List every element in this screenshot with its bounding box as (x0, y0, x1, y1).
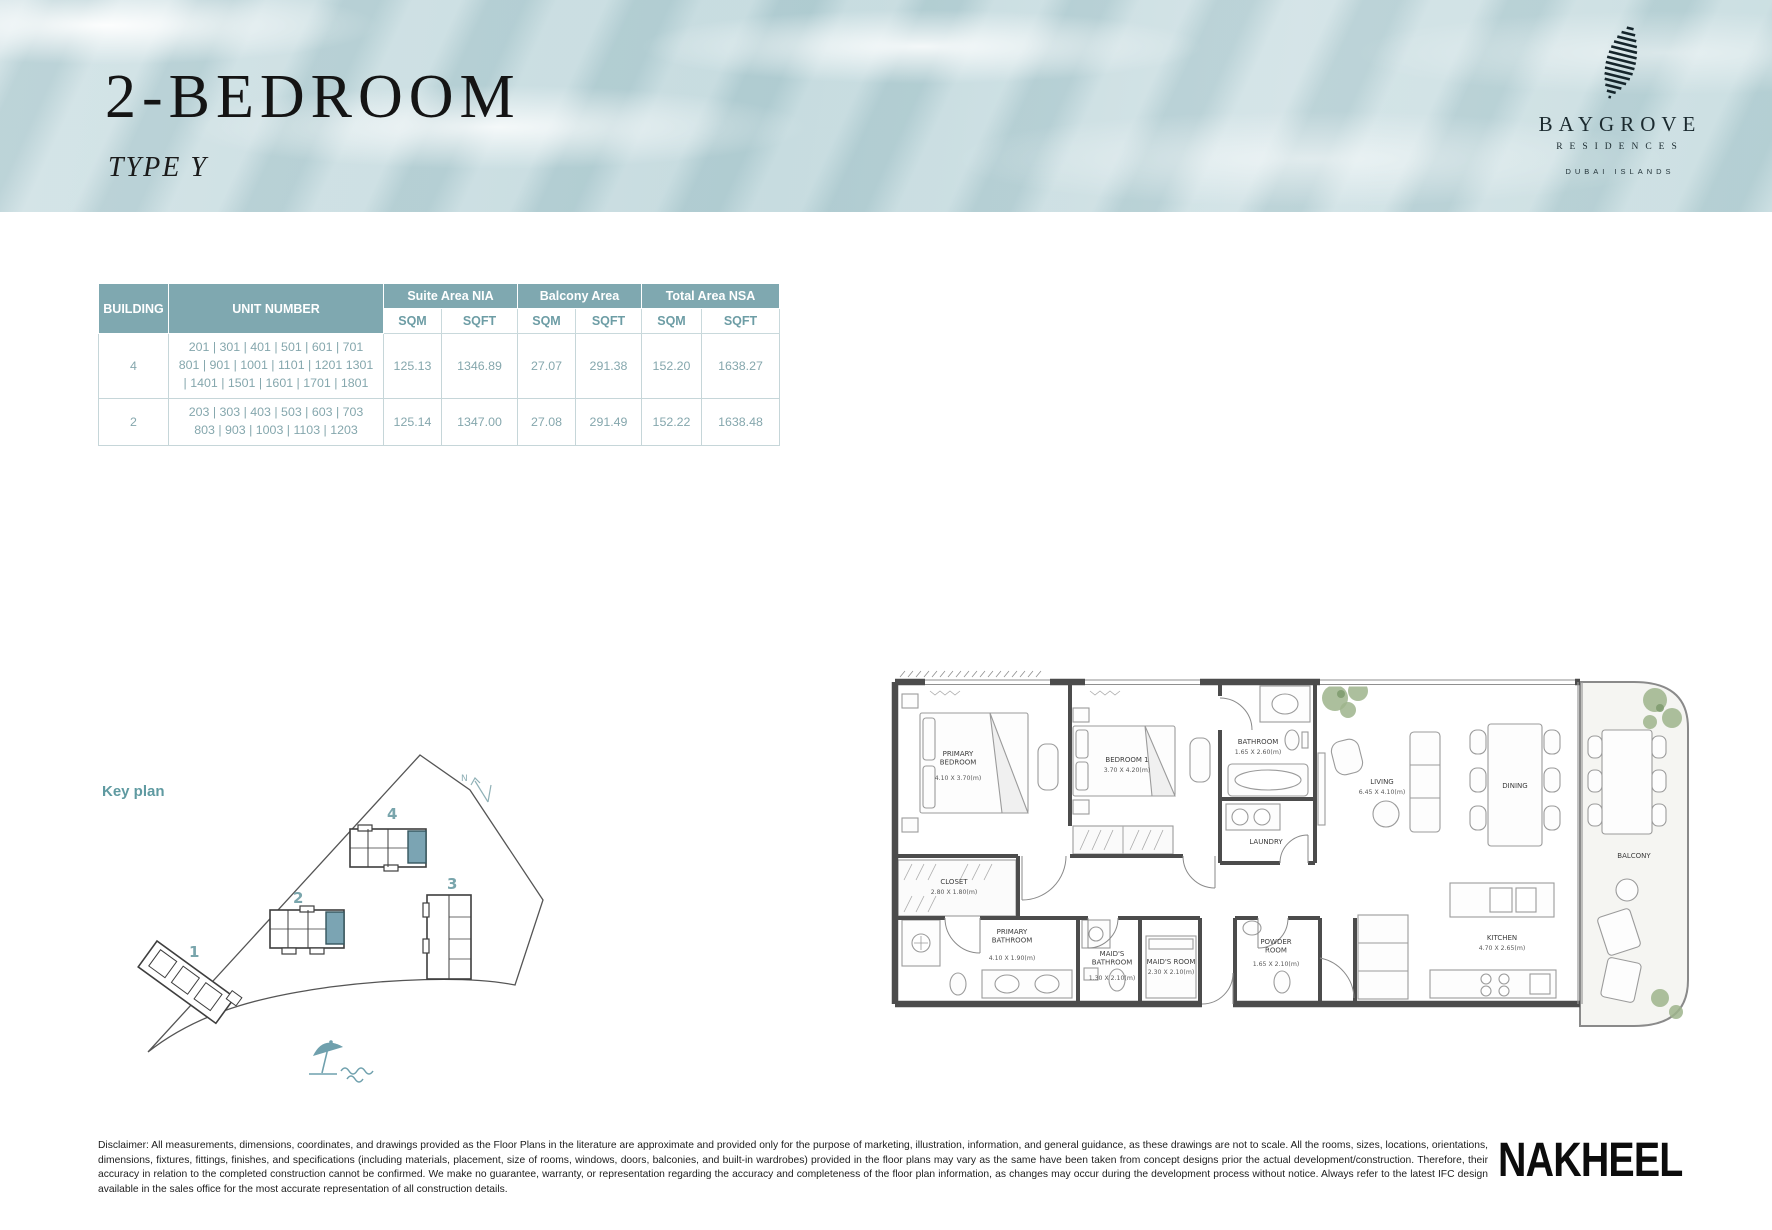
svg-text:3.70 X 4.20(m): 3.70 X 4.20(m) (1104, 767, 1151, 774)
brochure-page: 2-BEDROOM TYPE Y (0, 0, 1772, 1230)
table-row: 2 203 | 303 | 403 | 503 | 603 | 703 803 … (99, 398, 780, 445)
col-total-area: Total Area NSA (642, 284, 780, 309)
col-sqft: SQFT (702, 309, 780, 334)
svg-text:4.70 X 2.65(m): 4.70 X 2.65(m) (1479, 945, 1526, 952)
balcony-sqft-cell: 291.49 (576, 398, 642, 445)
col-suite-area: Suite Area NIA (384, 284, 518, 309)
svg-text:6.45 X 4.10(m): 6.45 X 4.10(m) (1359, 789, 1406, 796)
room-label-kitchen: KITCHEN (1487, 934, 1517, 942)
col-sqm: SQM (518, 309, 576, 334)
table-row: 4 201 | 301 | 401 | 501 | 601 | 701 801 … (99, 334, 780, 399)
nakheel-logo: NAKHEEL (1498, 1133, 1683, 1188)
svg-text:2.30 X 2.10(m): 2.30 X 2.10(m) (1148, 969, 1195, 976)
room-label-laundry: LAUNDRY (1249, 838, 1283, 846)
armchair (1190, 738, 1210, 782)
room-label-primary-bedroom: PRIMARYBEDROOM (940, 750, 977, 766)
coffee-table (1373, 801, 1399, 827)
building-cell: 4 (99, 334, 169, 399)
room-label-primary-bathroom: PRIMARYBATHROOM (992, 928, 1033, 944)
disclaimer-text: Disclaimer: All measurements, dimensions… (98, 1139, 1488, 1198)
header-band: 2-BEDROOM TYPE Y (0, 0, 1772, 212)
building-label-1: 1 (189, 943, 199, 961)
highlighted-unit (326, 912, 344, 944)
key-plan-building-4 (350, 825, 426, 871)
col-building: BUILDING (99, 284, 169, 334)
room-label-dining: DINING (1502, 782, 1527, 790)
highlighted-unit (408, 831, 426, 863)
units-cell: 203 | 303 | 403 | 503 | 603 | 703 803 | … (169, 398, 384, 445)
sofa (1410, 732, 1440, 832)
total-sqft-cell: 1638.27 (702, 334, 780, 399)
svg-text:4.10 X 3.70(m): 4.10 X 3.70(m) (935, 775, 982, 782)
page-subtitle: TYPE Y (108, 152, 208, 184)
room-label-balcony: BALCONY (1617, 852, 1651, 860)
col-balcony-area: Balcony Area (518, 284, 642, 309)
building-cell: 2 (99, 398, 169, 445)
area-table: BUILDING UNIT NUMBER Suite Area NIA Balc… (98, 283, 780, 446)
balcony-sqm-cell: 27.07 (518, 334, 576, 399)
balcony-sqm-cell: 27.08 (518, 398, 576, 445)
toilet (1274, 971, 1290, 993)
total-sqft-cell: 1638.48 (702, 398, 780, 445)
tall-cabinets (1358, 915, 1408, 999)
svg-text:4.10 X 1.90(m): 4.10 X 1.90(m) (989, 955, 1036, 962)
building-label-3: 3 (447, 875, 457, 893)
key-plan-building-2 (270, 906, 344, 954)
room-label-bathroom: BATHROOM (1238, 738, 1279, 746)
svg-text:1.65 X 2.10(m): 1.65 X 2.10(m) (1253, 961, 1300, 968)
tv-console (1318, 753, 1325, 825)
baygrove-fan-icon (1598, 24, 1642, 102)
svg-text:1.65 X 2.60(m): 1.65 X 2.60(m) (1235, 749, 1282, 756)
svg-text:1.30 X 2.10(m): 1.30 X 2.10(m) (1089, 975, 1136, 982)
outdoor-table (1602, 730, 1652, 834)
room-label-bedroom-1: BEDROOM 1 (1105, 756, 1148, 764)
key-plan: N (95, 745, 560, 1105)
col-sqft: SQFT (576, 309, 642, 334)
suite-sqm-cell: 125.14 (384, 398, 442, 445)
toilet (950, 973, 966, 995)
col-sqm: SQM (642, 309, 702, 334)
floor-plan: PRIMARYBEDROOM 4.10 X 3.70(m) BEDROOM 1 … (890, 668, 1690, 1036)
side-table (1616, 879, 1638, 901)
col-unit-number: UNIT NUMBER (169, 284, 384, 334)
balcony-sqft-cell: 291.38 (576, 334, 642, 399)
room-label-closet: CLOSET (940, 878, 968, 886)
page-title: 2-BEDROOM (105, 62, 521, 133)
suite-sqft-cell: 1347.00 (442, 398, 518, 445)
suite-sqft-cell: 1346.89 (442, 334, 518, 399)
brand-sub: RESIDENCES (1535, 142, 1705, 152)
total-sqm-cell: 152.22 (642, 398, 702, 445)
brand-location: DUBAI ISLANDS (1535, 167, 1705, 176)
north-label: N (461, 774, 468, 784)
svg-text:2.80 X 1.80(m): 2.80 X 1.80(m) (931, 889, 978, 896)
building-label-2: 2 (293, 889, 303, 907)
total-sqm-cell: 152.20 (642, 334, 702, 399)
baygrove-logo: BAYGROVE RESIDENCES DUBAI ISLANDS (1535, 24, 1705, 176)
suite-sqm-cell: 125.13 (384, 334, 442, 399)
brand-name: BAYGROVE (1535, 112, 1705, 137)
room-label-living: LIVING (1370, 778, 1393, 786)
building-label-4: 4 (387, 805, 397, 823)
room-label-maids-room: MAID'S ROOM (1147, 958, 1196, 966)
toilet (1285, 730, 1299, 750)
armchair (1038, 744, 1058, 790)
col-sqm: SQM (384, 309, 442, 334)
waves-icon (341, 1068, 373, 1074)
col-sqft: SQFT (442, 309, 518, 334)
units-cell: 201 | 301 | 401 | 501 | 601 | 701 801 | … (169, 334, 384, 399)
beach-umbrella-icon (309, 1040, 373, 1082)
key-plan-building-3 (423, 895, 471, 979)
